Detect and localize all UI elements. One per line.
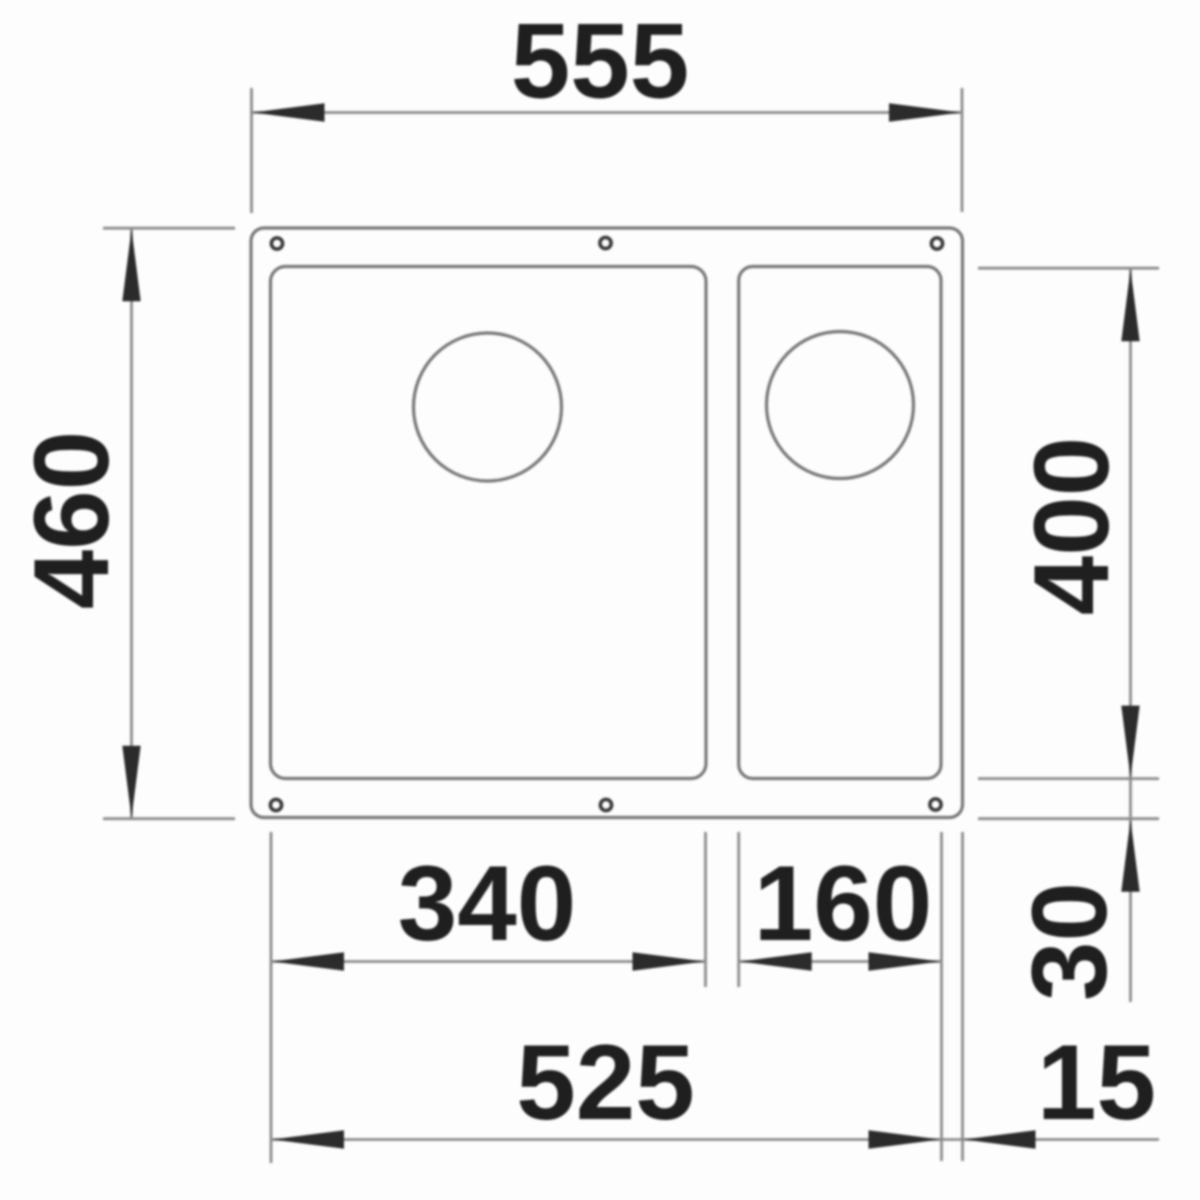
svg-text:460: 460 — [11, 431, 131, 610]
svg-text:160: 160 — [754, 843, 933, 963]
svg-text:400: 400 — [1011, 437, 1131, 616]
svg-text:525: 525 — [516, 1022, 695, 1142]
svg-text:15: 15 — [1037, 1022, 1156, 1142]
svg-text:555: 555 — [511, 1, 690, 121]
svg-text:340: 340 — [398, 843, 577, 963]
svg-text:30: 30 — [1009, 882, 1129, 1001]
